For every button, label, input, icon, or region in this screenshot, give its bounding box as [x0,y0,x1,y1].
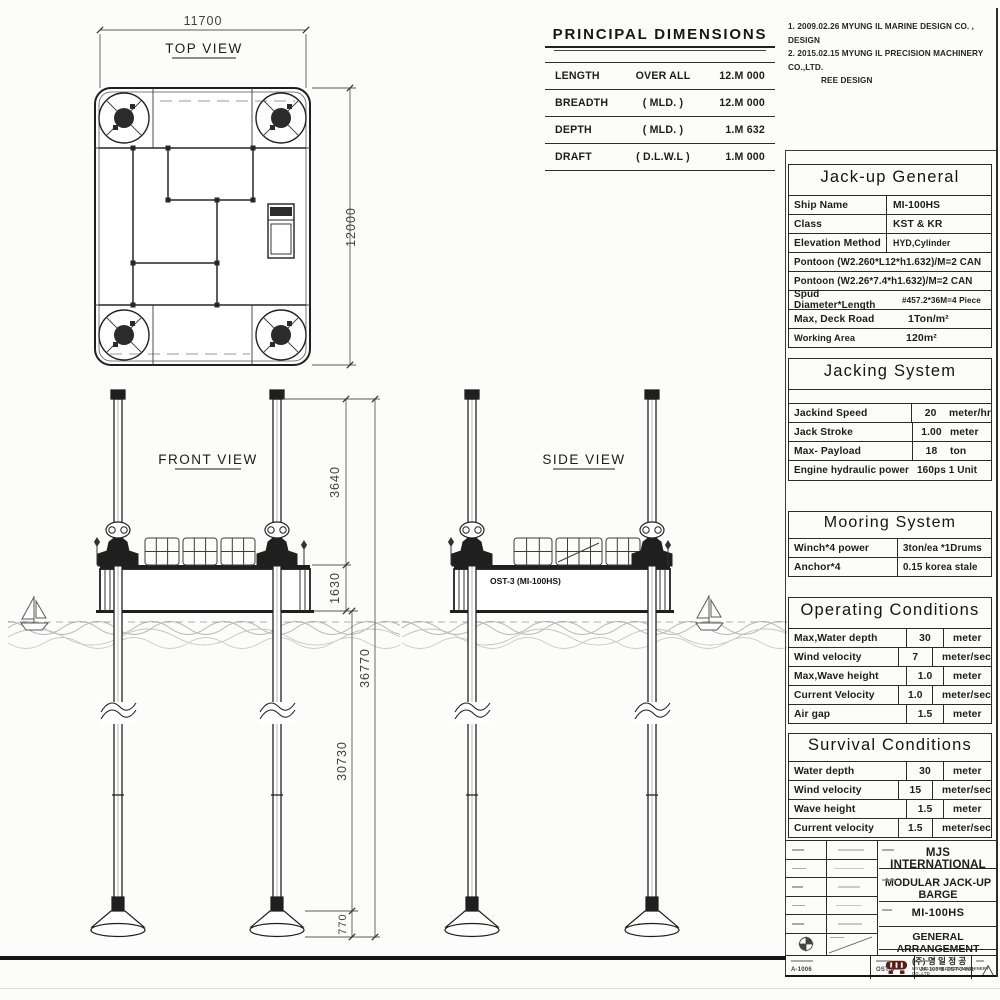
principal-dimensions-table: PRINCIPAL DIMENSIONS LENGTH OVER ALL 12.… [545,26,775,171]
scale-cell [826,934,877,956]
row-label: Wind velocity [789,652,898,663]
revision-notes: 1. 2009.02.26 MYUNG IL MARINE DESIGN CO.… [788,20,998,88]
row-value: 0.15 korea stale [897,558,991,576]
row-unit: meter/hr [949,408,991,419]
jack-up-general-table: Jack-up General Ship Name MI-100HS Class… [788,164,992,348]
dwg-no: JA-100-B-OST-3-001 [920,967,974,973]
table-row: LENGTH OVER ALL 12.M 000 [545,62,775,89]
table-row: Pontoon (W2.260*L12*h1.632)/M=2 CAN [789,252,991,271]
registration-mark-cell [786,934,826,956]
revision-grid [786,841,878,955]
row-label: Current velocity [789,823,898,834]
row-value: 20 [911,404,949,422]
client-name: MJS INTERNATIONAL [879,847,997,871]
row-unit: meter/sec [932,648,991,666]
row-value: 18 [912,442,950,460]
spud-feet [91,897,304,937]
row-value: 30 [906,762,943,780]
row-label: Engine hydraulic power [789,465,909,476]
row-value: 160ps 1 Unit [917,465,977,476]
table-row: Jack Stroke 1.00 meter [789,422,991,441]
sailboat-icon [696,595,723,630]
title-block: MJS INTERNATIONAL MODULAR JACK-UP BARGE … [786,840,997,978]
table-row: DEPTH ( MLD. ) 1.M 632 [545,116,775,143]
note-line: 1. 2009.02.26 MYUNG IL MARINE DESIGN CO.… [788,20,998,47]
row-label: Anchor*4 [789,562,897,573]
row-value: 120m² [906,332,937,344]
table-row: Class KST & KR [789,214,991,233]
table-row: Winch*4 power 3ton/ea *1Drums [789,538,991,557]
table-row: Max,Water depth 30 meter [789,628,991,647]
table-title: Jack-up General [789,165,991,195]
dim-qualifier: OVER ALL [619,70,707,82]
front-view-drawing: 3640 1630 30730 770 36770 FRONT VIEW [8,385,400,963]
side-view-drawing: OST-3 (MI-100HS) [402,385,787,963]
dim-value: 12.M 000 [707,97,775,109]
dim-770-label: 770 [337,913,349,934]
table-row: Current velocity 1.5 meter/sec [789,818,991,837]
row-label: Wind velocity [789,785,898,796]
row-unit: meter [950,427,979,438]
table-row: DRAFT ( D.L.W.L ) 1.M 000 [545,143,775,170]
panel-bottom-line [785,975,998,978]
row-value: 1.00 [912,423,950,441]
table-title: Jacking System [789,359,991,389]
table-row: Max,Wave height 1.0 meter [789,666,991,685]
title-block-fields: MJS INTERNATIONAL MODULAR JACK-UP BARGE … [879,841,997,955]
waves [8,622,400,649]
registration-mark-icon [798,936,814,952]
title-underline [545,46,775,48]
principal-dimensions-title: PRINCIPAL DIMENSIONS [545,26,775,43]
row-label: Max,Wave height [789,671,906,682]
row-value: 1Ton/m² [908,313,949,325]
table-row: Elevation Method HYD,Cylinder [789,233,991,252]
dim-1630-label: 1630 [328,572,342,604]
drawing-sheet: 11700 12000 TOP VIEW [0,0,1000,1000]
dim-qualifier: ( MLD. ) [619,124,707,136]
scan-edge-line [0,988,1000,989]
table-row: Water depth 30 meter [789,761,991,780]
dimension-labels: 3640 1630 30730 770 36770 [328,466,372,935]
row-value: 1.0 [906,667,943,685]
file-no: A-1006 [791,967,812,973]
dim-value: 1.M 000 [707,151,775,163]
job-no: OST-3 [876,967,894,973]
dim-12000-label: 12000 [344,207,358,247]
top-view-label: TOP VIEW [165,41,243,56]
row-unit: meter [943,629,991,647]
dim-qualifier: ( D.L.W.L ) [619,151,707,163]
table-row: Max, Deck Road 1Ton/m² [789,309,991,328]
row-label: Class [789,219,886,230]
table-title: Operating Conditions [789,598,991,628]
row-unit: meter [943,667,991,685]
revision-row [786,878,877,897]
leg-break-marks [454,702,670,724]
ship-no: MI-100HS [879,907,997,919]
row-value: MI-100HS [886,196,991,214]
client-cell: MJS INTERNATIONAL [879,847,997,869]
dim-value: 12.M 000 [707,70,775,82]
table-row: Current Velocity 1.0 meter/sec [789,685,991,704]
table-row: Air gap 1.5 meter [789,704,991,723]
row-label: Pontoon (W2.260*L12*h1.632)/M=2 CAN [789,257,981,268]
scale-row [786,934,877,956]
row-unit: ton [950,446,966,457]
table-row: Ship Name MI-100HS [789,195,991,214]
row-value: 7 [898,648,932,666]
row-label: Max,Water depth [789,633,906,644]
row-unit: meter [943,705,991,723]
principal-dimensions-rows: LENGTH OVER ALL 12.M 000 BREADTH ( MLD. … [545,62,775,171]
row-value: KST & KR [886,215,991,233]
table-row: Engine hydraulic power 160ps 1 Unit [789,460,991,480]
row-label: Air gap [789,709,906,720]
row-label: Current Velocity [789,690,898,701]
table-row: Wind velocity 7 meter/sec [789,647,991,666]
row-label: Spud Diameter*Length [789,289,902,311]
row-value: #457.2*36M=4 Piece [902,296,981,305]
leg-break-marks [100,702,295,724]
deck-cargo [145,538,255,565]
table-row: Wave height 1.5 meter [789,799,991,818]
row-value: 1.0 [898,686,932,704]
deck-cargo [514,538,640,565]
spec-panel: Jack-up General Ship Name MI-100HS Class… [785,150,998,977]
waves [402,622,787,649]
side-view-label: SIDE VIEW [542,452,625,467]
blank-row [789,389,991,403]
revision-row [786,860,877,879]
drawing-title-cell: GENERAL ARRANGEMENT [879,931,997,950]
top-view-drawing: 11700 12000 TOP VIEW [50,8,385,380]
row-label: Jack Stroke [789,427,912,438]
dim-name: DRAFT [545,151,619,163]
row-value: 30 [906,629,943,647]
note-line: REE DESIGN [788,74,998,88]
dim-30730-label: 30730 [335,741,349,781]
row-label: Max, Deck Road [789,314,894,325]
frame-bottom-line [0,956,786,960]
dim-value: 1.M 632 [707,124,775,136]
jacking-towers [98,522,297,566]
sailboat-icon [21,596,48,630]
hull [450,565,674,613]
front-view-label: FRONT VIEW [158,452,258,467]
hull-name-label: OST-3 (MI-100HS) [490,576,561,586]
row-value: 1.5 [898,819,932,837]
revision-row [786,841,877,860]
dim-name: LENGTH [545,70,619,82]
table-row: Wind velocity 15 meter/sec [789,780,991,799]
table-row: Max- Payload 18 ton [789,441,991,460]
dim-11700-label: 11700 [184,14,223,28]
dim-qualifier: ( MLD. ) [619,97,707,109]
frame-right-line [996,8,997,977]
spud-feet [445,897,679,937]
row-label: Elevation Method [789,238,886,249]
row-label: Wave height [789,804,906,815]
table-row: Pontoon (W2.26*7.4*h1.632)/M=2 CAN [789,271,991,290]
row-value: 1.5 [906,705,943,723]
revision-row [786,915,877,934]
project-name: MODULAR JACK-UP BARGE [879,877,997,901]
barge-outline [95,88,310,365]
row-label: Max- Payload [789,446,912,457]
row-label: Jackind Speed [789,408,911,419]
jacking-system-table: Jacking System Jackind Speed 20 meter/hr… [788,358,992,481]
project-cell: MODULAR JACK-UP BARGE [879,877,997,902]
row-value: 3ton/ea *1Drums [897,539,991,557]
row-value: 15 [898,781,932,799]
row-value: 1.5 [906,800,943,818]
row-unit: meter/sec [932,781,991,799]
row-value: HYD,Cylinder [886,234,991,252]
revision-row [786,897,877,916]
dim-36770-label: 36770 [358,648,372,688]
row-unit: meter [943,800,991,818]
mooring-system-table: Mooring System Winch*4 power 3ton/ea *1D… [788,511,992,577]
scale-slash-icon [826,934,876,955]
table-row: Anchor*4 0.15 korea stale [789,557,991,576]
survival-conditions-table: Survival Conditions Water depth 30 meter… [788,733,992,838]
table-title: Survival Conditions [789,734,991,761]
row-unit: meter [943,762,991,780]
table-row: BREADTH ( MLD. ) 12.M 000 [545,89,775,116]
row-label: Winch*4 power [789,543,897,554]
row-label: Working Area [789,333,882,343]
dim-name: BREADTH [545,97,619,109]
row-label: Ship Name [789,200,886,211]
row-unit: meter/sec [932,686,991,704]
jacking-towers [452,522,672,566]
dim-name: DEPTH [545,124,619,136]
row-unit: meter/sec [932,819,991,837]
note-line: 2. 2015.02.15 MYUNG IL PRECISION MACHINE… [788,47,998,74]
table-title: Mooring System [789,512,991,538]
table-row: Spud Diameter*Length #457.2*36M=4 Piece [789,290,991,309]
title-underline-2 [554,50,766,51]
row-label: Pontoon (W2.26*7.4*h1.632)/M=2 CAN [789,276,972,287]
table-row: Jackind Speed 20 meter/hr [789,403,991,422]
row-label: Water depth [789,766,906,777]
dim-3640-label: 3640 [328,466,342,498]
table-row: Working Area 120m² [789,328,991,347]
ship-no-cell: MI-100HS [879,907,997,927]
operating-conditions-table: Operating Conditions Max,Water depth 30 … [788,597,992,724]
